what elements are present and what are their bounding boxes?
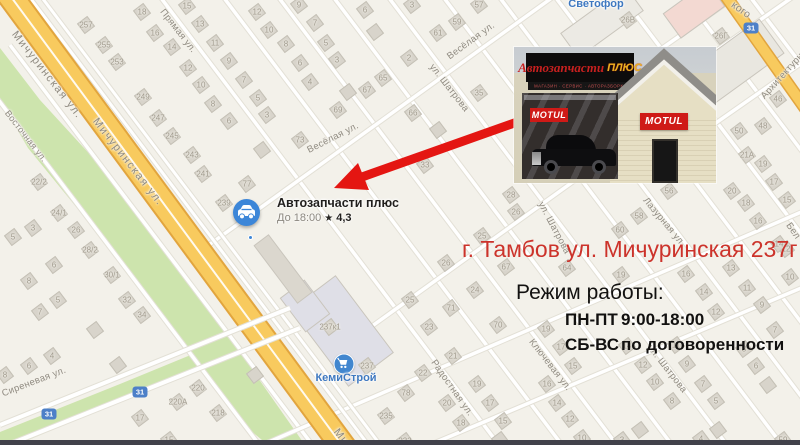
- car-icon: [236, 203, 257, 222]
- marker-label[interactable]: Автозапчасти плюс До 18:00 ★ 4,3: [277, 196, 399, 224]
- store-banner: MOTUL: [522, 93, 618, 179]
- map-canvas[interactable]: 257255253249247245243241239237к123723523…: [0, 0, 800, 445]
- motul-banner-logo: MOTUL: [530, 108, 568, 122]
- marker-anchor-dot: [248, 235, 253, 240]
- banner-top-strip: [524, 95, 616, 100]
- marker-title: Автозапчасти плюс: [277, 196, 399, 210]
- schedule-row-weekend: СБ-ВС по договоренности: [565, 335, 784, 355]
- marker-hours: До 18:00: [277, 212, 321, 224]
- marker-rating: 4,3: [336, 212, 351, 224]
- address-label: г. Тамбов ул. Мичуринская 237г: [462, 236, 798, 263]
- motul-wall-sign: MOTUL: [640, 113, 688, 130]
- car-photo: [532, 133, 616, 177]
- schedule-block: Режим работы: ПН-ПТ 9:00-18:00 СБ-ВС по …: [516, 281, 784, 355]
- schedule-row-weekdays: ПН-ПТ 9:00-18:00: [565, 310, 784, 330]
- place-marker-pin[interactable]: [233, 199, 260, 226]
- store-door: [652, 139, 678, 183]
- bottom-bar: [0, 440, 800, 445]
- star-icon: ★: [324, 213, 333, 224]
- schedule-title: Режим работы:: [516, 281, 784, 305]
- storefront-photo: Автозапчасти ПЛЮС МАГАЗИН · СЕРВИС · АВТ…: [514, 47, 716, 183]
